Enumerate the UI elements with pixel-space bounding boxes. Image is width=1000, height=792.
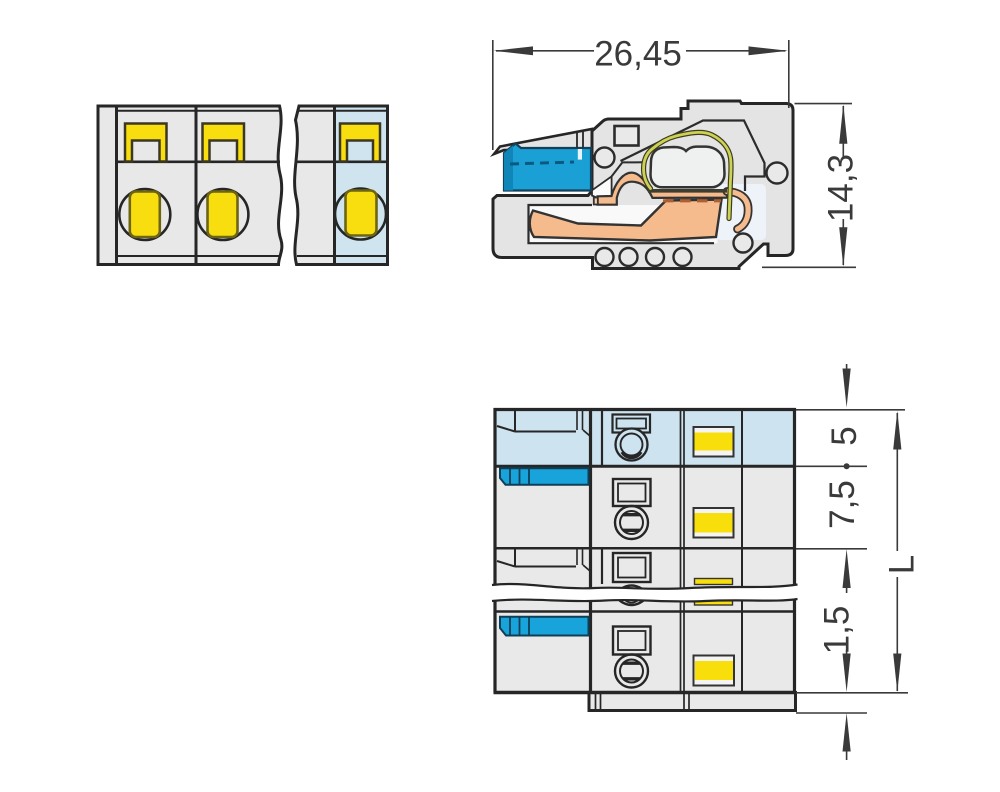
svg-text:L: L	[883, 555, 922, 574]
svg-text:14,3: 14,3	[822, 154, 861, 222]
svg-text:1,5: 1,5	[818, 606, 857, 655]
svg-text:26,45: 26,45	[594, 35, 682, 74]
svg-text:7,5: 7,5	[823, 480, 862, 529]
svg-text:5: 5	[825, 426, 864, 445]
